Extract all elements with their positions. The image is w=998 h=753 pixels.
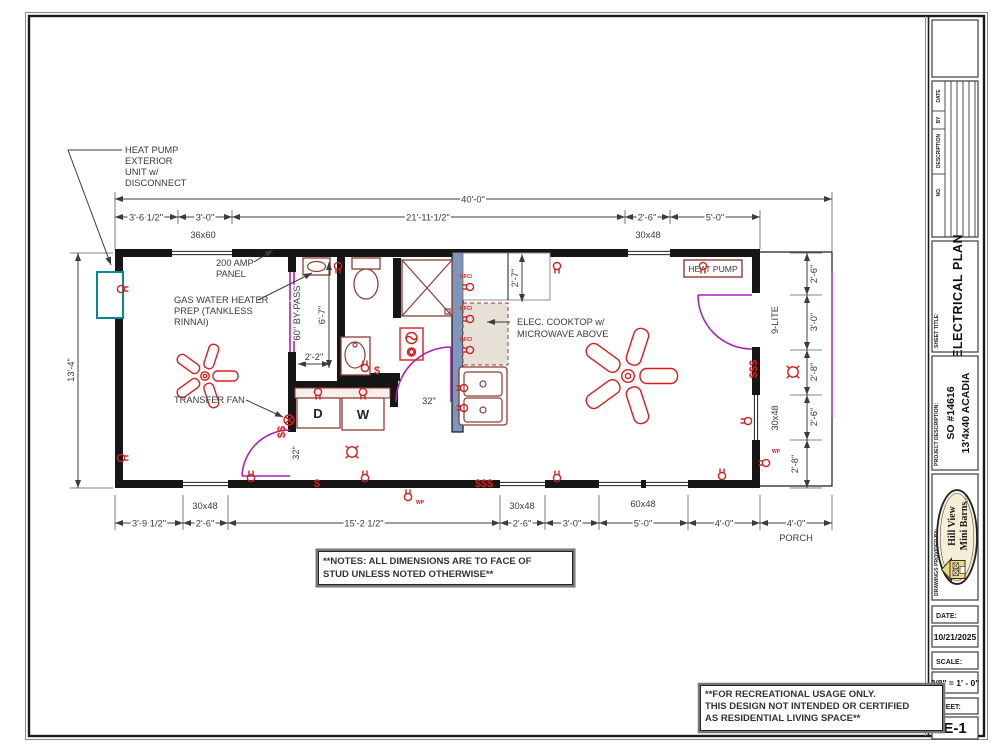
dim-right-4: 2'-6" [809,408,819,427]
window-size-30x48-bl: 30x48 [192,501,217,511]
dim-right-2: 3'-0" [809,313,819,332]
note-line: DISCONNECT [125,178,187,188]
dim-overall: 40'-0" [461,195,485,205]
dim-right-5: 2'-8" [790,455,800,474]
note-line: MICROWAVE ABOVE [517,329,608,339]
kitchen-counter [463,253,550,365]
nine-lite-label: 9-LITE [770,306,780,334]
dim-utility: 6'-7" [317,306,327,325]
logo-line1: Hill View [947,505,958,546]
outlet [718,469,725,480]
cooktop [463,303,508,365]
dryer-label: D [313,406,322,421]
left-door-size: 32" [291,446,301,460]
window-size-30x48: 30x48 [635,230,660,240]
note-line: GAS WATER HEATER [174,295,269,305]
hill-view-mini-barns-logo: Hill View Mini Barns LLC [937,490,977,584]
dim-bottom-4: 2'-6" [513,519,532,529]
dim-top-3: 21'-11 1/2" [406,213,450,223]
window-30x48-right [754,395,757,440]
window-size-60x48: 60x48 [630,499,655,509]
bath-vanity [341,337,370,375]
window-30x48-bottom-left [183,482,228,485]
revision-logo-box [932,20,978,77]
gfci-label: GFCI [460,306,473,312]
window-30x48-bottom-mid [500,482,545,485]
note-line: HEAT PUMP [125,145,178,155]
laundry-closet: D W [295,388,390,430]
sheet-title-label: SHEET TITLE: [934,313,940,348]
shower [402,260,452,316]
scale-label: SCALE: [936,659,962,666]
bath-fan-light [400,328,423,360]
transfer-fan-note: TRANSFER FAN [174,395,283,417]
porch-light [787,366,800,379]
dim-top-4: 2'-6" [638,213,657,223]
ceiling-fan [584,327,678,426]
notes-line2: STUD UNLESS NOTED OTHERWISE** [323,569,494,580]
heat-pump-exterior-note: HEAT PUMP EXTERIOR UNIT w/ DISCONNECT [68,145,187,265]
note-line: ELEC. COOKTOP w/ [517,317,605,327]
exterior-heat-pump-unit [97,272,123,318]
switch: $ [374,365,380,377]
electrical-plan-sheet: DATE BY DESCRIPTION NO. SHEET TITLE: ELE… [0,0,998,753]
dim-hall-width: 2'-2" [305,352,324,362]
hall-door-size: 32" [422,396,436,406]
gfci-label: GFCI [460,274,473,280]
ceiling-light [346,446,359,459]
disclaimer-line1: **FOR RECREATIONAL USAGE ONLY. [705,689,876,700]
dim-left-height: 13'-4" [66,358,76,382]
wp-outlet-porch [759,459,770,466]
revision-table: DATE BY DESCRIPTION NO. [932,81,978,237]
title-block: DATE BY DESCRIPTION NO. SHEET TITLE: ELE… [931,20,980,739]
gfci-label: GFCI [460,337,473,343]
sheet-title: ELECTRICAL PLAN [951,234,965,358]
dim-bottom-8: 4'-0" [787,519,806,529]
dim-counter: 2'-7" [510,269,520,288]
project-so-number: SO #14616 [945,386,957,439]
outlet [741,417,752,424]
project-label: PROJECT DESCRIPTION: [934,403,940,466]
rev-header-no: NO. [936,187,942,197]
heat-pump-label: HEAT PUMP [688,264,738,274]
dim-right-1: 2'-6" [809,265,819,284]
dim-top-2: 3'-0" [196,213,215,223]
rev-header-date: DATE [936,89,942,103]
three-switch: $$$ [748,360,760,378]
disclaimer-line2: THIS DESIGN NOT INTENDED OR CERTIFIED [705,701,909,712]
dim-top-1: 3'-6 1/2" [129,213,163,223]
sheet-number: E-1 [943,720,966,737]
outlet [361,471,368,482]
logo-line2: Mini Barns [959,502,970,551]
note-line: UNIT w/ [125,167,159,177]
bypass-door-label: 60" BY-PASS [292,286,302,341]
note-line: TRANSFER FAN [174,395,245,405]
three-switch: $$$ [475,478,493,490]
disclaimer-box: **FOR RECREATIONAL USAGE ONLY. THIS DESI… [699,684,944,732]
logo-box: DRAWINGS PROVIDED BY: Hill View Mini Bar… [932,474,978,600]
window-30x48-top [628,251,670,254]
note-line: RINNAI) [174,317,209,327]
wp-label: WP [772,449,781,455]
washer-label: W [357,407,370,422]
project-box: PROJECT DESCRIPTION: SO #14616 13'4x40 A… [932,356,978,470]
laundry-shelf [295,388,390,398]
notes-box: **NOTES: ALL DIMENSIONS ARE TO FACE OF S… [317,550,574,586]
right-window-size: 30x48 [770,405,780,430]
sheet-title-box: SHEET TITLE: ELECTRICAL PLAN [932,234,978,358]
date-value: 10/21/2025 [934,632,977,642]
logo-llc: LLC [964,494,969,502]
outlet [553,471,560,482]
project-model: 13'4x40 ACADIA [960,372,972,453]
water-heater [303,258,330,275]
kitchen-sink [459,367,507,425]
disclaimer-line3: AS RESIDENTIAL LIVING SPACE** [705,713,861,724]
outlet [553,262,560,273]
heat-pump-label-box: HEAT PUMP [684,260,742,277]
toilet [352,258,380,299]
wp-label: WP [416,500,425,506]
note-line: 200 AMP [216,258,254,268]
dim-bottom-5: 3'-0" [563,519,582,529]
note-line: EXTERIOR [125,156,173,166]
note-line: PANEL [216,269,246,279]
date-label: DATE: [936,613,957,620]
window-60x48-bottom [599,480,688,488]
dim-bottom-2: 2'-6" [196,519,215,529]
two-switch: $$ [276,426,288,438]
window-36x60 [172,251,232,254]
dimensions: 40'-0" 3'-6 1/2" 3'-0" 21'-11 1/2" 2'-6"… [66,192,832,543]
dim-right-3: 2'-8" [809,363,819,382]
note-line: PREP (TANKLESS [174,306,253,316]
date-box: DATE: 10/21/2025 [932,606,978,647]
notes-line1: **NOTES: ALL DIMENSIONS ARE TO FACE OF [323,556,532,567]
window-size-36x60: 36x60 [190,230,215,240]
rev-header-by: BY [936,116,942,124]
plan-canvas: DATE BY DESCRIPTION NO. SHEET TITLE: ELE… [0,0,998,753]
dim-bottom-7: 4'-0" [715,519,734,529]
dim-top-5: 5'-0" [706,213,725,223]
dim-bottom-3: 15'-2 1/2" [344,519,383,529]
dim-bottom-6: 5'-0" [634,519,653,529]
dim-bottom-1: 3'-9 1/2" [132,519,166,529]
window-size-30x48-bm: 30x48 [509,501,534,511]
switch: $ [314,478,320,490]
nine-lite-door [698,295,752,349]
wp-outlet [404,490,411,501]
rev-header-description: DESCRIPTION [936,134,942,169]
porch-label: PORCH [779,533,813,543]
porch [760,252,832,486]
